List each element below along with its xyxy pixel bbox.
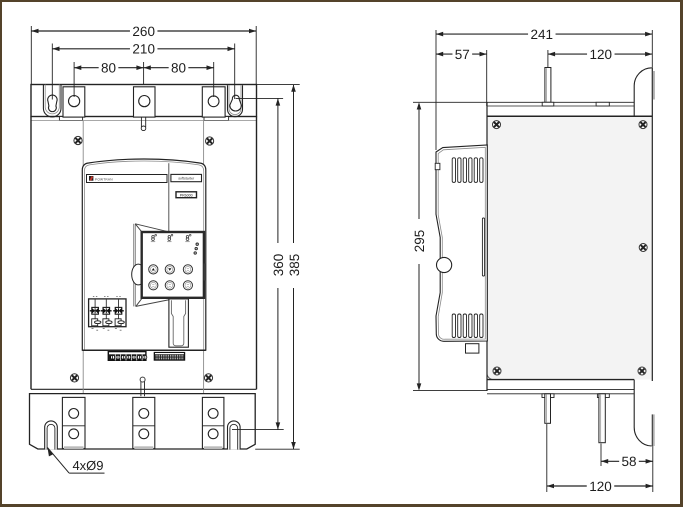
svg-text:295: 295: [412, 230, 427, 253]
svg-text:57: 57: [455, 47, 470, 62]
svg-text:360: 360: [271, 254, 286, 277]
svg-text:80: 80: [171, 61, 186, 76]
svg-text:softstarter: softstarter: [178, 177, 195, 181]
svg-text:PR5000: PR5000: [180, 193, 193, 197]
svg-text:58: 58: [621, 454, 636, 469]
svg-text:260: 260: [132, 24, 155, 39]
svg-text:POWTRAN: POWTRAN: [95, 177, 113, 181]
svg-text:80: 80: [101, 61, 116, 76]
svg-text:385: 385: [287, 254, 302, 277]
svg-text:120: 120: [590, 47, 613, 62]
svg-text:210: 210: [132, 42, 155, 57]
svg-text:241: 241: [531, 27, 554, 42]
svg-text:4xØ9: 4xØ9: [72, 458, 103, 473]
svg-text:120: 120: [589, 479, 612, 494]
